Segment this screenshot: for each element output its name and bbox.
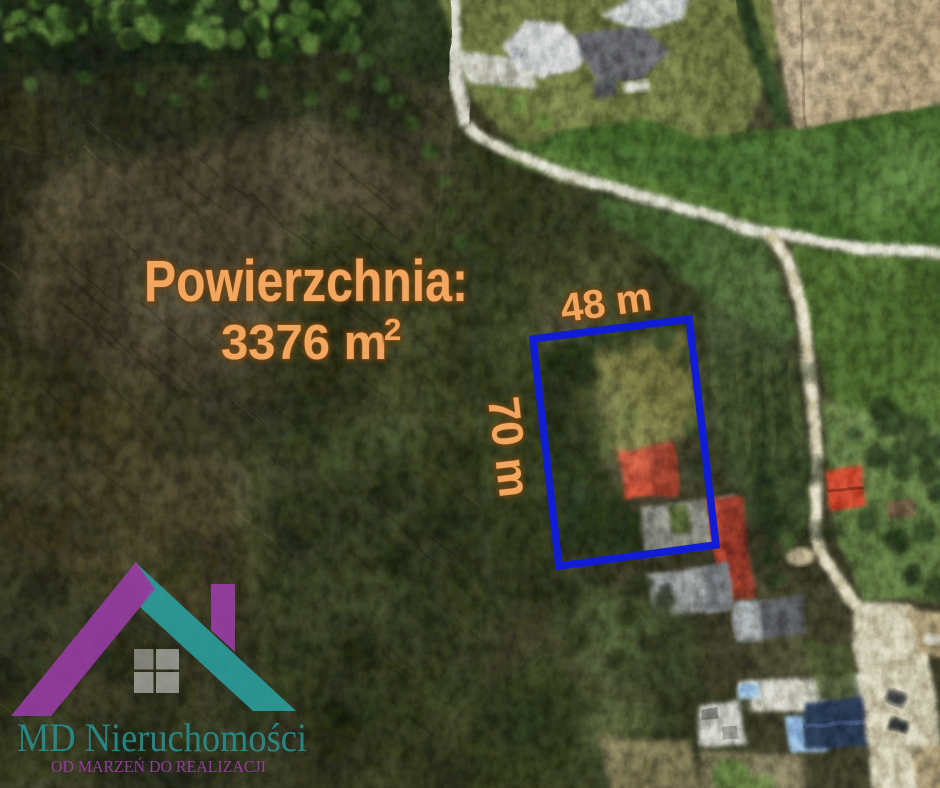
svg-text:2: 2	[384, 312, 401, 347]
svg-text:3376 m: 3376 m	[221, 316, 387, 370]
svg-text:OD MARZEŃ DO REALIZACJI: OD MARZEŃ DO REALIZACJI	[51, 757, 266, 776]
svg-text:Powierzchnia:: Powierzchnia:	[144, 249, 468, 314]
svg-text:MD Nieruchomości: MD Nieruchomości	[17, 715, 307, 760]
